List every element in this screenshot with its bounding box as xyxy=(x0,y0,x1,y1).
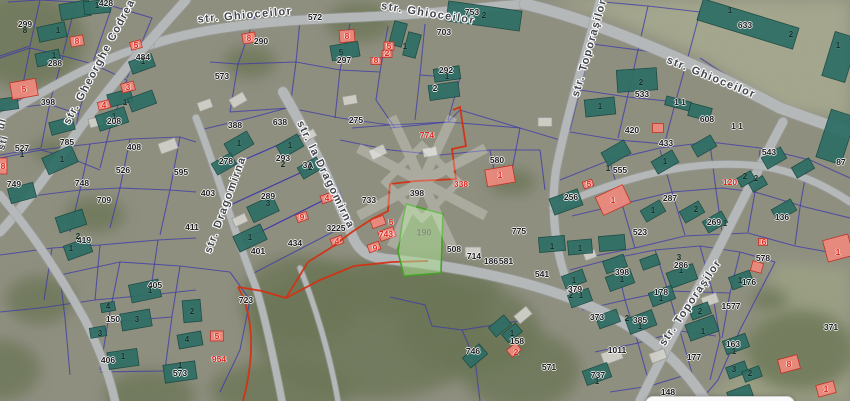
building-footprint xyxy=(567,239,592,255)
building-footprint-selected xyxy=(384,42,394,50)
map-render-surface xyxy=(0,0,850,401)
building-footprint-selected xyxy=(339,29,355,42)
building-footprint-selected xyxy=(242,32,257,44)
building-footprint-selected xyxy=(371,58,381,65)
building-footprint xyxy=(100,301,115,312)
building-footprint-selected xyxy=(653,124,664,133)
building-footprint-gray xyxy=(538,118,552,127)
building-footprint-selected xyxy=(70,35,85,47)
map-popup-partial[interactable] xyxy=(645,396,795,401)
building-footprint xyxy=(83,0,110,15)
building-footprint xyxy=(538,235,565,252)
building-footprint xyxy=(616,68,657,93)
building-footprint xyxy=(107,348,139,369)
building-footprint xyxy=(182,299,202,322)
building-footprint xyxy=(584,97,616,117)
building-footprint-selected xyxy=(211,331,224,341)
map-canvas[interactable]: str. Ghioceilorstr. Ghioceilorstr. Ghioc… xyxy=(0,0,850,401)
building-footprint-selected xyxy=(759,239,768,246)
building-footprint xyxy=(598,234,625,251)
building-footprint-selected xyxy=(382,51,392,58)
building-footprint-selected xyxy=(0,158,7,174)
building-footprint-gray xyxy=(342,94,357,105)
building-footprint xyxy=(163,361,197,383)
building-footprint-gray xyxy=(465,247,481,257)
